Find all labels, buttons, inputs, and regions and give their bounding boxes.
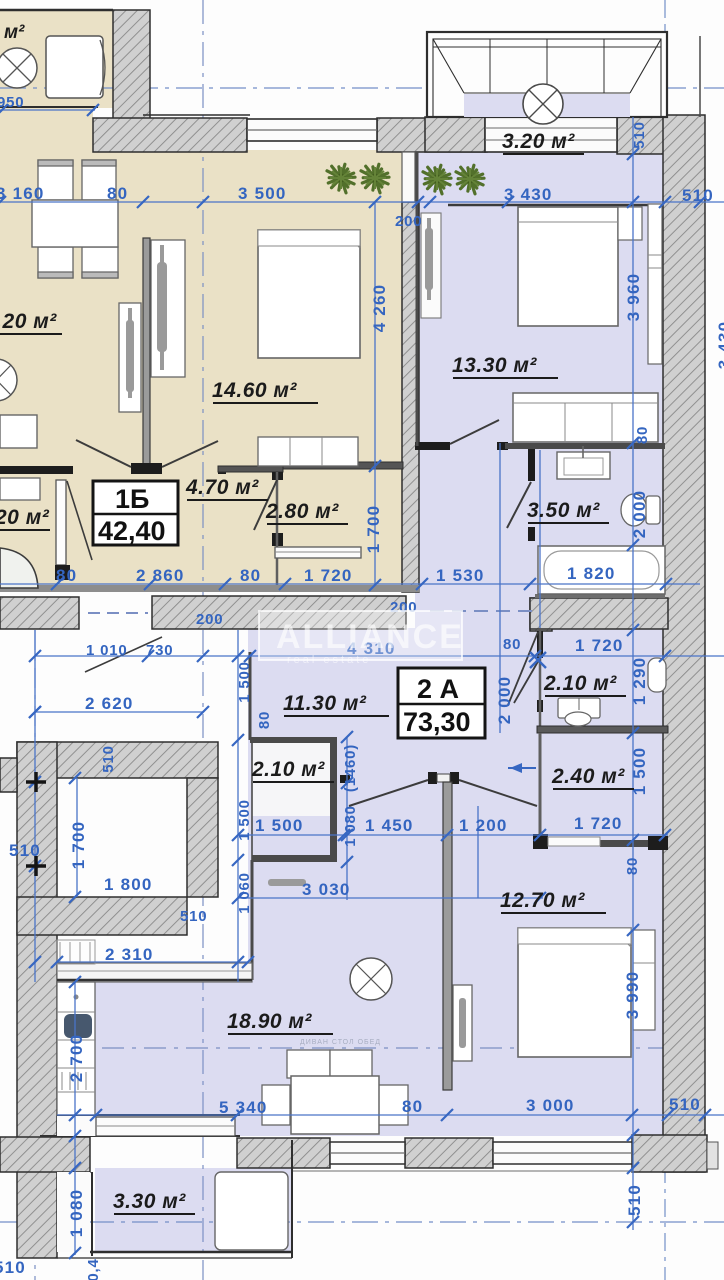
svg-text:14.60 м²: 14.60 м² — [212, 379, 297, 402]
svg-text:3 960: 3 960 — [624, 273, 643, 322]
svg-text:ALLIANCE: ALLIANCE — [276, 618, 464, 656]
svg-text:1 800: 1 800 — [104, 875, 153, 894]
svg-text:80: 80 — [634, 426, 651, 444]
svg-text:2 310: 2 310 — [105, 945, 154, 964]
svg-text:80: 80 — [402, 1097, 423, 1116]
svg-text:1 010: 1 010 — [86, 642, 128, 659]
svg-text:1 060: 1 060 — [236, 872, 253, 914]
svg-text:1 720: 1 720 — [574, 814, 623, 833]
svg-text:510: 510 — [100, 745, 117, 772]
svg-text:12.70 м²: 12.70 м² — [500, 889, 585, 912]
svg-text:(1460): (1460) — [342, 744, 359, 792]
svg-text:1 450: 1 450 — [365, 816, 414, 835]
svg-text:730: 730 — [146, 642, 173, 659]
svg-text:1 200: 1 200 — [459, 816, 508, 835]
svg-text:1Б: 1Б — [115, 484, 149, 514]
svg-text:2.80 м²: 2.80 м² — [265, 500, 339, 523]
svg-text:80: 80 — [240, 566, 261, 585]
svg-text:13.30 м²: 13.30 м² — [452, 354, 537, 377]
svg-text:1 820: 1 820 — [567, 564, 616, 583]
svg-text:3 000: 3 000 — [526, 1096, 575, 1115]
svg-text:200: 200 — [395, 213, 422, 230]
svg-text:18.90 м²: 18.90 м² — [227, 1010, 312, 1033]
svg-text:3 030: 3 030 — [302, 880, 351, 899]
svg-text:510: 510 — [625, 1184, 644, 1216]
svg-text:3 160: 3 160 — [0, 184, 45, 203]
svg-text:3 430: 3 430 — [715, 321, 724, 370]
svg-text:950: 950 — [0, 94, 24, 111]
svg-text:5.20 м²: 5.20 м² — [0, 310, 57, 333]
svg-text:1 530: 1 530 — [436, 566, 485, 585]
svg-text:510: 510 — [682, 186, 714, 205]
svg-text:ДИВАН СТОЛ ОБЕД: ДИВАН СТОЛ ОБЕД — [300, 1039, 381, 1046]
svg-text:510: 510 — [180, 908, 207, 925]
svg-text:1 500: 1 500 — [236, 661, 253, 703]
svg-text:2 860: 2 860 — [136, 566, 185, 585]
svg-text:0,4: 0,4 — [85, 1258, 102, 1280]
svg-text:510: 510 — [631, 121, 648, 148]
svg-text:3 500: 3 500 — [238, 184, 287, 203]
svg-text:510: 510 — [9, 841, 41, 860]
svg-text:80: 80 — [503, 636, 521, 653]
svg-text:1 720: 1 720 — [304, 566, 353, 585]
svg-text:3 430: 3 430 — [504, 185, 553, 204]
svg-text:80: 80 — [256, 711, 273, 729]
svg-text:42,40: 42,40 — [98, 516, 166, 546]
svg-text:200: 200 — [196, 611, 223, 628]
svg-text:510: 510 — [669, 1095, 701, 1114]
svg-text:м²: м² — [4, 22, 25, 43]
svg-text:80: 80 — [56, 566, 77, 585]
svg-text:1 080: 1 080 — [67, 1189, 86, 1238]
svg-text:1 290: 1 290 — [630, 657, 649, 706]
svg-text:510: 510 — [0, 1258, 26, 1277]
svg-text:4 260: 4 260 — [370, 284, 389, 333]
svg-text:2.10 м²: 2.10 м² — [251, 758, 325, 781]
svg-text:2 А: 2 А — [417, 674, 459, 704]
svg-text:real estate: real estate — [287, 654, 371, 666]
svg-text:1 720: 1 720 — [575, 636, 624, 655]
svg-text:4.70 м²: 4.70 м² — [185, 476, 259, 499]
svg-text:2.40 м²: 2.40 м² — [551, 765, 625, 788]
svg-text:2 700: 2 700 — [67, 1034, 86, 1083]
svg-text:2 000: 2 000 — [630, 490, 649, 539]
svg-text:1 700: 1 700 — [69, 821, 88, 870]
svg-text:1 500: 1 500 — [236, 799, 253, 841]
svg-text:80: 80 — [624, 857, 641, 875]
svg-text:2 620: 2 620 — [85, 694, 134, 713]
svg-text:3.30 м²: 3.30 м² — [113, 1190, 186, 1213]
svg-text:3.50 м²: 3.50 м² — [527, 499, 600, 522]
svg-text:1 500: 1 500 — [630, 747, 649, 796]
svg-text:1 500: 1 500 — [255, 816, 304, 835]
svg-text:2 000: 2 000 — [495, 676, 514, 725]
svg-text:11.30 м²: 11.30 м² — [283, 692, 367, 715]
svg-text:2.10 м²: 2.10 м² — [543, 672, 617, 695]
svg-text:510: 510 — [0, 568, 1, 585]
svg-text:73,30: 73,30 — [403, 707, 471, 737]
svg-text:3.20 м²: 3.20 м² — [502, 130, 575, 153]
svg-text:5 340: 5 340 — [219, 1098, 268, 1117]
svg-text:1 700: 1 700 — [364, 505, 383, 554]
svg-text:80: 80 — [107, 184, 128, 203]
svg-text:3 990: 3 990 — [623, 971, 642, 1020]
svg-text:1 080: 1 080 — [342, 805, 359, 847]
svg-text:20 м²: 20 м² — [0, 506, 50, 529]
